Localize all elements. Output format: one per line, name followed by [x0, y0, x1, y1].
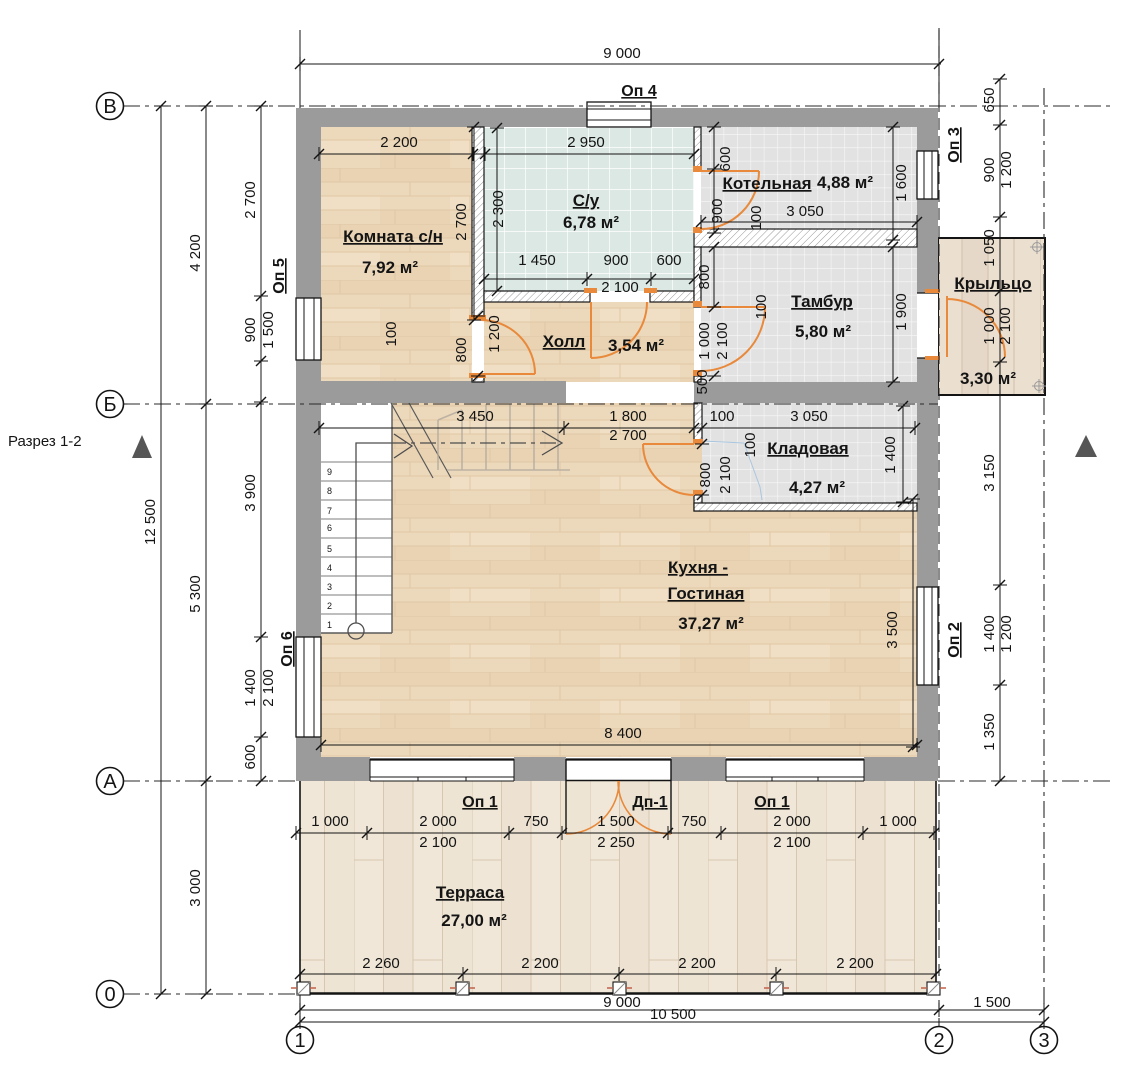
- svg-text:1 050: 1 050: [981, 229, 998, 267]
- svg-text:100: 100: [742, 432, 759, 457]
- svg-text:3 050: 3 050: [790, 408, 828, 425]
- svg-text:2 100: 2 100: [717, 456, 734, 494]
- svg-text:1 500: 1 500: [260, 311, 277, 349]
- svg-text:Крыльцо: Крыльцо: [954, 274, 1031, 293]
- svg-text:8 400: 8 400: [604, 725, 642, 742]
- svg-text:1 000: 1 000: [879, 813, 917, 830]
- svg-text:900: 900: [981, 157, 998, 182]
- svg-text:2 000: 2 000: [419, 813, 457, 830]
- svg-text:2 100: 2 100: [260, 669, 277, 707]
- svg-text:2: 2: [933, 1030, 944, 1052]
- svg-text:2 100: 2 100: [601, 279, 639, 296]
- svg-text:3: 3: [1038, 1030, 1049, 1052]
- svg-text:Оп 2: Оп 2: [946, 622, 963, 658]
- svg-text:2 950: 2 950: [567, 134, 605, 151]
- svg-text:1 000: 1 000: [311, 813, 349, 830]
- svg-text:0: 0: [104, 984, 115, 1006]
- svg-text:9 000: 9 000: [603, 994, 641, 1011]
- svg-text:Оп 5: Оп 5: [271, 258, 288, 294]
- svg-text:2 250: 2 250: [597, 834, 635, 851]
- svg-text:Тамбур: Тамбур: [791, 292, 853, 311]
- svg-text:Комната с/н: Комната с/н: [343, 227, 443, 246]
- svg-text:1 200: 1 200: [486, 315, 503, 353]
- svg-text:Котельная: Котельная: [722, 174, 811, 193]
- svg-text:1 900: 1 900: [893, 293, 910, 331]
- svg-text:2: 2: [327, 601, 332, 611]
- svg-text:С/у: С/у: [573, 191, 600, 210]
- svg-text:900: 900: [709, 198, 726, 223]
- svg-text:Дп-1: Дп-1: [632, 794, 667, 811]
- svg-text:Холл: Холл: [543, 332, 586, 351]
- svg-text:3,54 м²: 3,54 м²: [608, 336, 664, 355]
- svg-text:4,88 м²: 4,88 м²: [817, 173, 873, 192]
- svg-text:8: 8: [327, 486, 332, 496]
- svg-text:3 450: 3 450: [456, 408, 494, 425]
- svg-text:Оп 1: Оп 1: [754, 794, 790, 811]
- svg-text:600: 600: [656, 252, 681, 269]
- svg-text:4: 4: [327, 563, 332, 573]
- svg-text:800: 800: [697, 462, 714, 487]
- svg-text:1: 1: [294, 1030, 305, 1052]
- svg-text:4,27 м²: 4,27 м²: [789, 478, 845, 497]
- svg-text:Кладовая: Кладовая: [767, 439, 848, 458]
- svg-text:7: 7: [327, 506, 332, 516]
- svg-text:3 900: 3 900: [242, 474, 259, 512]
- svg-text:Оп 3: Оп 3: [946, 127, 963, 163]
- svg-text:9 000: 9 000: [603, 45, 641, 62]
- svg-text:Гостиная: Гостиная: [668, 584, 745, 603]
- svg-text:3 500: 3 500: [884, 611, 901, 649]
- svg-text:9: 9: [327, 467, 332, 477]
- svg-text:1 400: 1 400: [882, 436, 899, 474]
- svg-text:1 000: 1 000: [981, 307, 998, 345]
- svg-text:Кухня -: Кухня -: [668, 558, 728, 577]
- svg-text:750: 750: [681, 813, 706, 830]
- svg-text:2 000: 2 000: [773, 813, 811, 830]
- svg-text:7,92 м²: 7,92 м²: [362, 258, 418, 277]
- svg-text:Разрез 1-2: Разрез 1-2: [8, 433, 82, 450]
- svg-text:2 100: 2 100: [419, 834, 457, 851]
- svg-text:Б: Б: [103, 394, 116, 416]
- svg-text:1 500: 1 500: [597, 813, 635, 830]
- svg-text:3,30 м²: 3,30 м²: [960, 369, 1016, 388]
- svg-text:А: А: [103, 771, 117, 793]
- svg-text:1 200: 1 200: [998, 151, 1015, 189]
- svg-text:2 100: 2 100: [714, 322, 731, 360]
- svg-text:5: 5: [327, 544, 332, 554]
- svg-text:3: 3: [327, 582, 332, 592]
- svg-text:800: 800: [453, 337, 470, 362]
- svg-text:500: 500: [694, 369, 711, 394]
- svg-text:В: В: [103, 96, 116, 118]
- svg-text:Оп 1: Оп 1: [462, 794, 498, 811]
- svg-text:1 400: 1 400: [242, 669, 259, 707]
- svg-text:1: 1: [327, 620, 332, 630]
- svg-text:27,00 м²: 27,00 м²: [441, 911, 507, 930]
- svg-text:900: 900: [603, 252, 628, 269]
- svg-text:2 260: 2 260: [362, 955, 400, 972]
- svg-text:1 800: 1 800: [609, 408, 647, 425]
- svg-text:2 200: 2 200: [836, 955, 874, 972]
- svg-text:Оп 4: Оп 4: [621, 83, 657, 100]
- svg-text:2 200: 2 200: [380, 134, 418, 151]
- svg-text:2 700: 2 700: [242, 181, 259, 219]
- svg-text:5 300: 5 300: [187, 575, 204, 613]
- svg-text:1 500: 1 500: [973, 994, 1011, 1011]
- svg-text:3 050: 3 050: [786, 203, 824, 220]
- svg-text:2 700: 2 700: [453, 203, 470, 241]
- svg-text:2 100: 2 100: [773, 834, 811, 851]
- svg-text:2 200: 2 200: [521, 955, 559, 972]
- svg-text:2 100: 2 100: [997, 307, 1014, 345]
- svg-text:900: 900: [242, 317, 259, 342]
- svg-text:Оп 6: Оп 6: [279, 631, 296, 667]
- svg-text:1 600: 1 600: [893, 164, 910, 202]
- svg-text:37,27 м²: 37,27 м²: [678, 614, 744, 633]
- svg-text:3 150: 3 150: [981, 454, 998, 492]
- svg-text:100: 100: [383, 321, 400, 346]
- svg-text:1 450: 1 450: [518, 252, 556, 269]
- svg-text:2 300: 2 300: [490, 190, 507, 228]
- svg-text:10 500: 10 500: [650, 1006, 696, 1023]
- svg-text:2 700: 2 700: [609, 427, 647, 444]
- svg-text:1 400: 1 400: [981, 615, 998, 653]
- svg-text:100: 100: [748, 205, 765, 230]
- svg-text:1 000: 1 000: [696, 322, 713, 360]
- svg-text:4 200: 4 200: [187, 234, 204, 272]
- svg-text:750: 750: [523, 813, 548, 830]
- svg-text:650: 650: [981, 87, 998, 112]
- svg-text:3 000: 3 000: [187, 869, 204, 907]
- svg-text:1 350: 1 350: [981, 713, 998, 751]
- svg-text:100: 100: [753, 294, 770, 319]
- svg-text:100: 100: [709, 408, 734, 425]
- svg-text:Терраса: Терраса: [436, 883, 505, 902]
- svg-text:6: 6: [327, 523, 332, 533]
- svg-text:800: 800: [696, 264, 713, 289]
- svg-text:6,78 м²: 6,78 м²: [563, 213, 619, 232]
- svg-text:5,80 м²: 5,80 м²: [795, 322, 851, 341]
- svg-text:600: 600: [242, 744, 259, 769]
- svg-text:1 200: 1 200: [998, 615, 1015, 653]
- svg-text:12 500: 12 500: [142, 499, 159, 545]
- svg-text:2 200: 2 200: [678, 955, 716, 972]
- svg-text:600: 600: [717, 146, 734, 171]
